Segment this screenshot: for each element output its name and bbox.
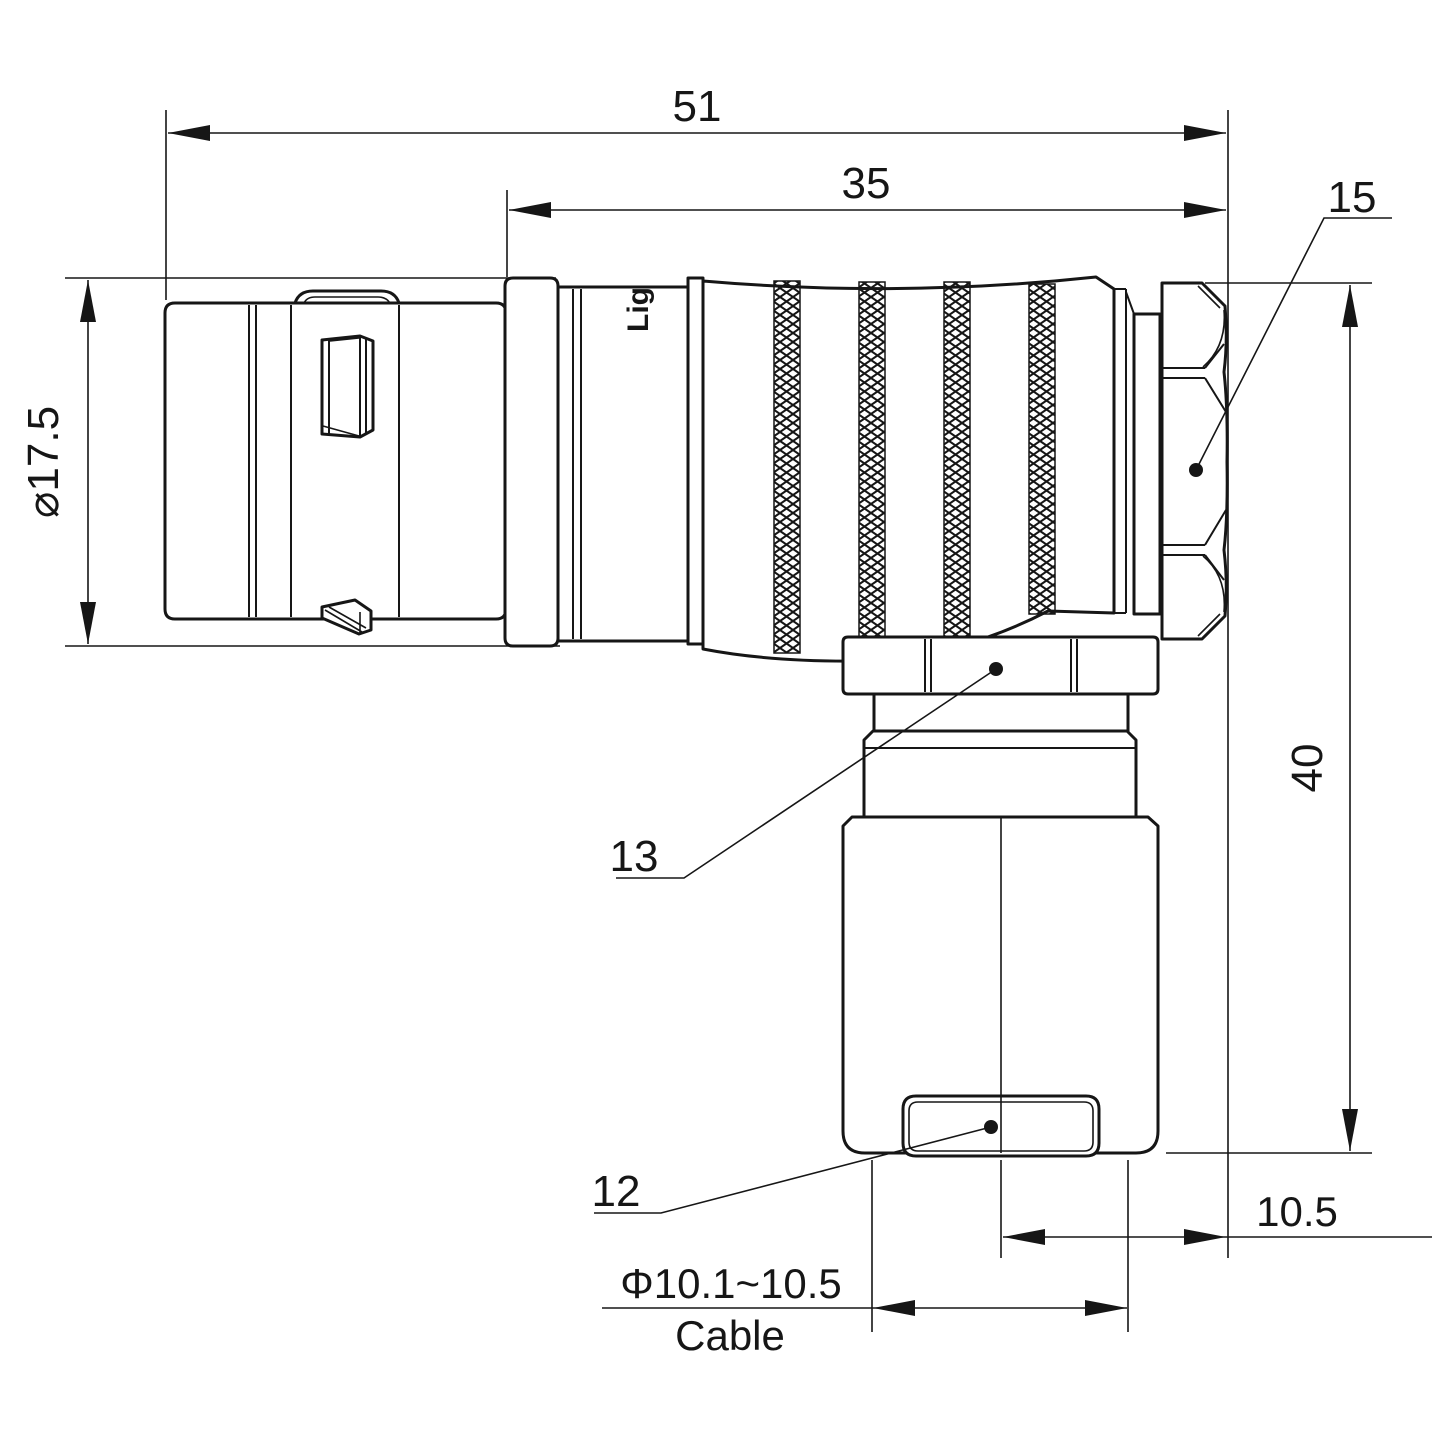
elbow-body — [843, 637, 1158, 1156]
technical-drawing-page: Lightany Lig — [0, 0, 1440, 1440]
upper-barrel — [864, 731, 1136, 817]
plug-body: Lig — [165, 277, 1227, 661]
knurl-strip — [1029, 284, 1055, 614]
dim-10-5-text: 10.5 — [1256, 1188, 1338, 1235]
washer — [1134, 314, 1160, 614]
dim-17-5-text: ⌀17.5 — [19, 406, 68, 518]
dim-cable-label-text: Cable — [675, 1312, 785, 1359]
label-13-text: 13 — [610, 832, 659, 881]
narrow-band — [688, 278, 703, 644]
leader-dot-13 — [989, 662, 1003, 676]
leader-dot-15 — [1189, 463, 1203, 477]
dim-back-offset: 10.5 — [1003, 1188, 1432, 1245]
neck — [874, 694, 1128, 732]
dim-40-text: 40 — [1283, 744, 1332, 793]
leader-dot-12 — [984, 1120, 998, 1134]
knurl-strip — [944, 282, 970, 642]
back-hex-nut — [1162, 283, 1227, 639]
connector-dimension-drawing: Lightany Lig — [0, 0, 1440, 1440]
dimensions: 51 35 ⌀17.5 40 — [19, 82, 1432, 1359]
label-12-text: 12 — [592, 1167, 641, 1216]
dim-height: 40 — [1283, 285, 1358, 1151]
body-engraving-text: Lig — [622, 287, 655, 332]
dim-35-text: 35 — [842, 159, 891, 208]
knurl-strip — [859, 282, 885, 651]
dim-cable: Φ10.1~10.5 Cable — [602, 1260, 1127, 1359]
dim-front-diameter: ⌀17.5 — [19, 280, 96, 644]
label-15-text: 15 — [1328, 173, 1377, 222]
front-ring — [505, 278, 558, 646]
dim-51-text: 51 — [673, 82, 722, 131]
knurl-strip — [774, 281, 800, 653]
dim-body-length: 35 — [509, 159, 1226, 218]
mid-body — [558, 287, 703, 641]
dim-cable-range-text: Φ10.1~10.5 — [620, 1260, 842, 1307]
dim-overall-length: 51 — [168, 82, 1226, 141]
